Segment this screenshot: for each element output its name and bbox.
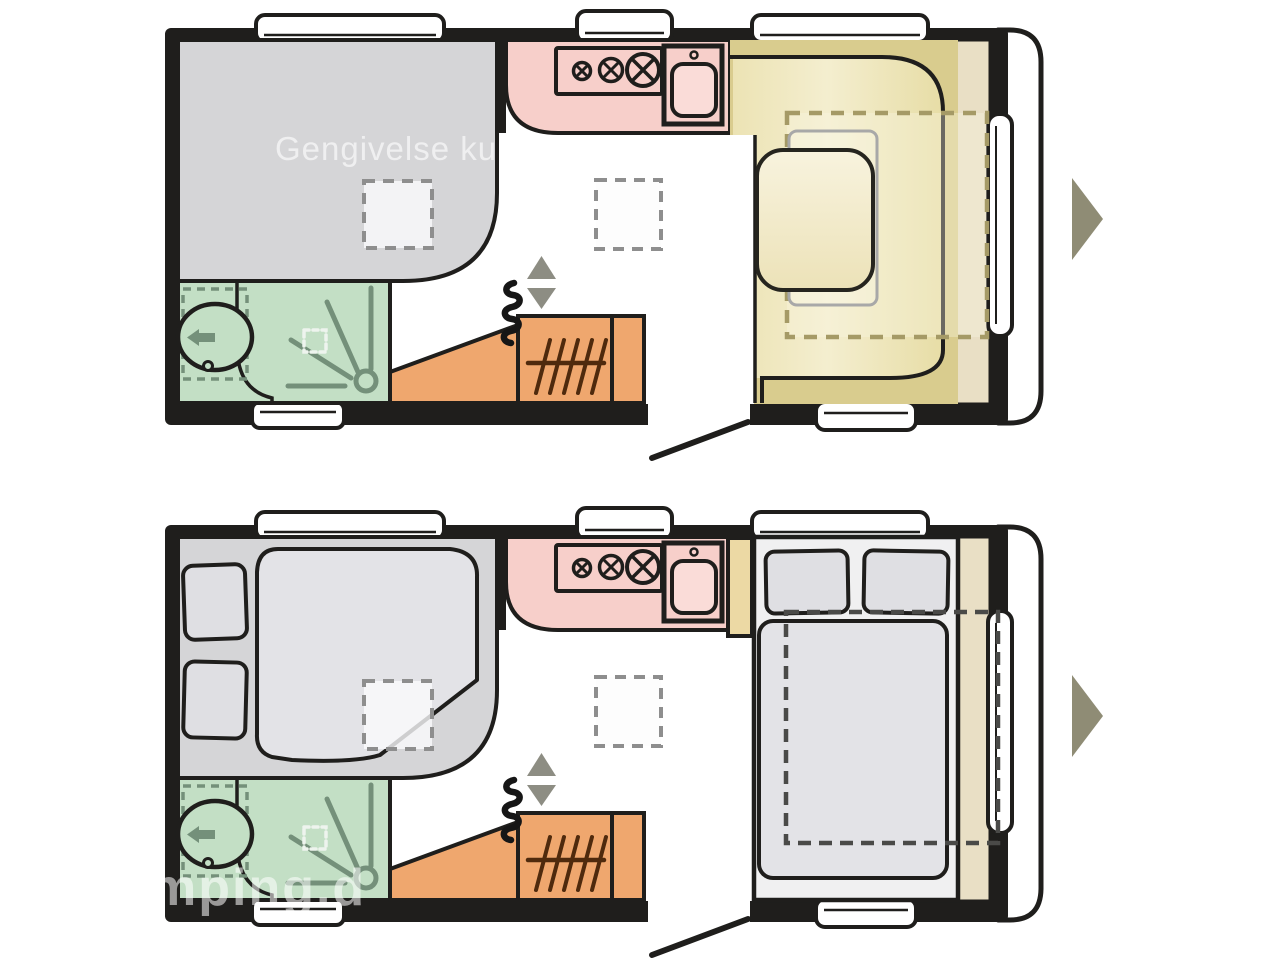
pillow <box>183 564 248 640</box>
kitchen-block <box>497 537 730 630</box>
pillow <box>863 550 948 613</box>
caravan-floorplan-page: Gengivelse kun e mping.d <box>0 0 1280 960</box>
floor-locker-outline <box>596 677 661 746</box>
floorplan-canvas: Gengivelse kun e mping.d <box>0 0 1280 960</box>
carousel-next-icon[interactable] <box>1072 178 1103 260</box>
rear-double-bed <box>728 537 998 900</box>
pillow <box>183 661 247 739</box>
floor-locker-outline <box>596 180 661 249</box>
table-storage-outline <box>364 681 432 749</box>
lounge-table-outline <box>364 181 432 248</box>
kitchen-block <box>497 40 730 133</box>
floorplan-night: mping.d <box>150 508 1041 955</box>
watermark-bottom: mping.d <box>150 859 366 917</box>
watermark-top: Gengivelse kun e <box>275 130 546 167</box>
dinette-table <box>757 150 873 290</box>
floorplan-day: Gengivelse kun e <box>165 11 1041 458</box>
bathroom-block <box>178 281 390 403</box>
pillow <box>765 550 848 613</box>
carousel-next-icon[interactable] <box>1072 675 1103 757</box>
bedside-cabinet <box>728 538 752 636</box>
corridor-floor <box>646 135 754 404</box>
